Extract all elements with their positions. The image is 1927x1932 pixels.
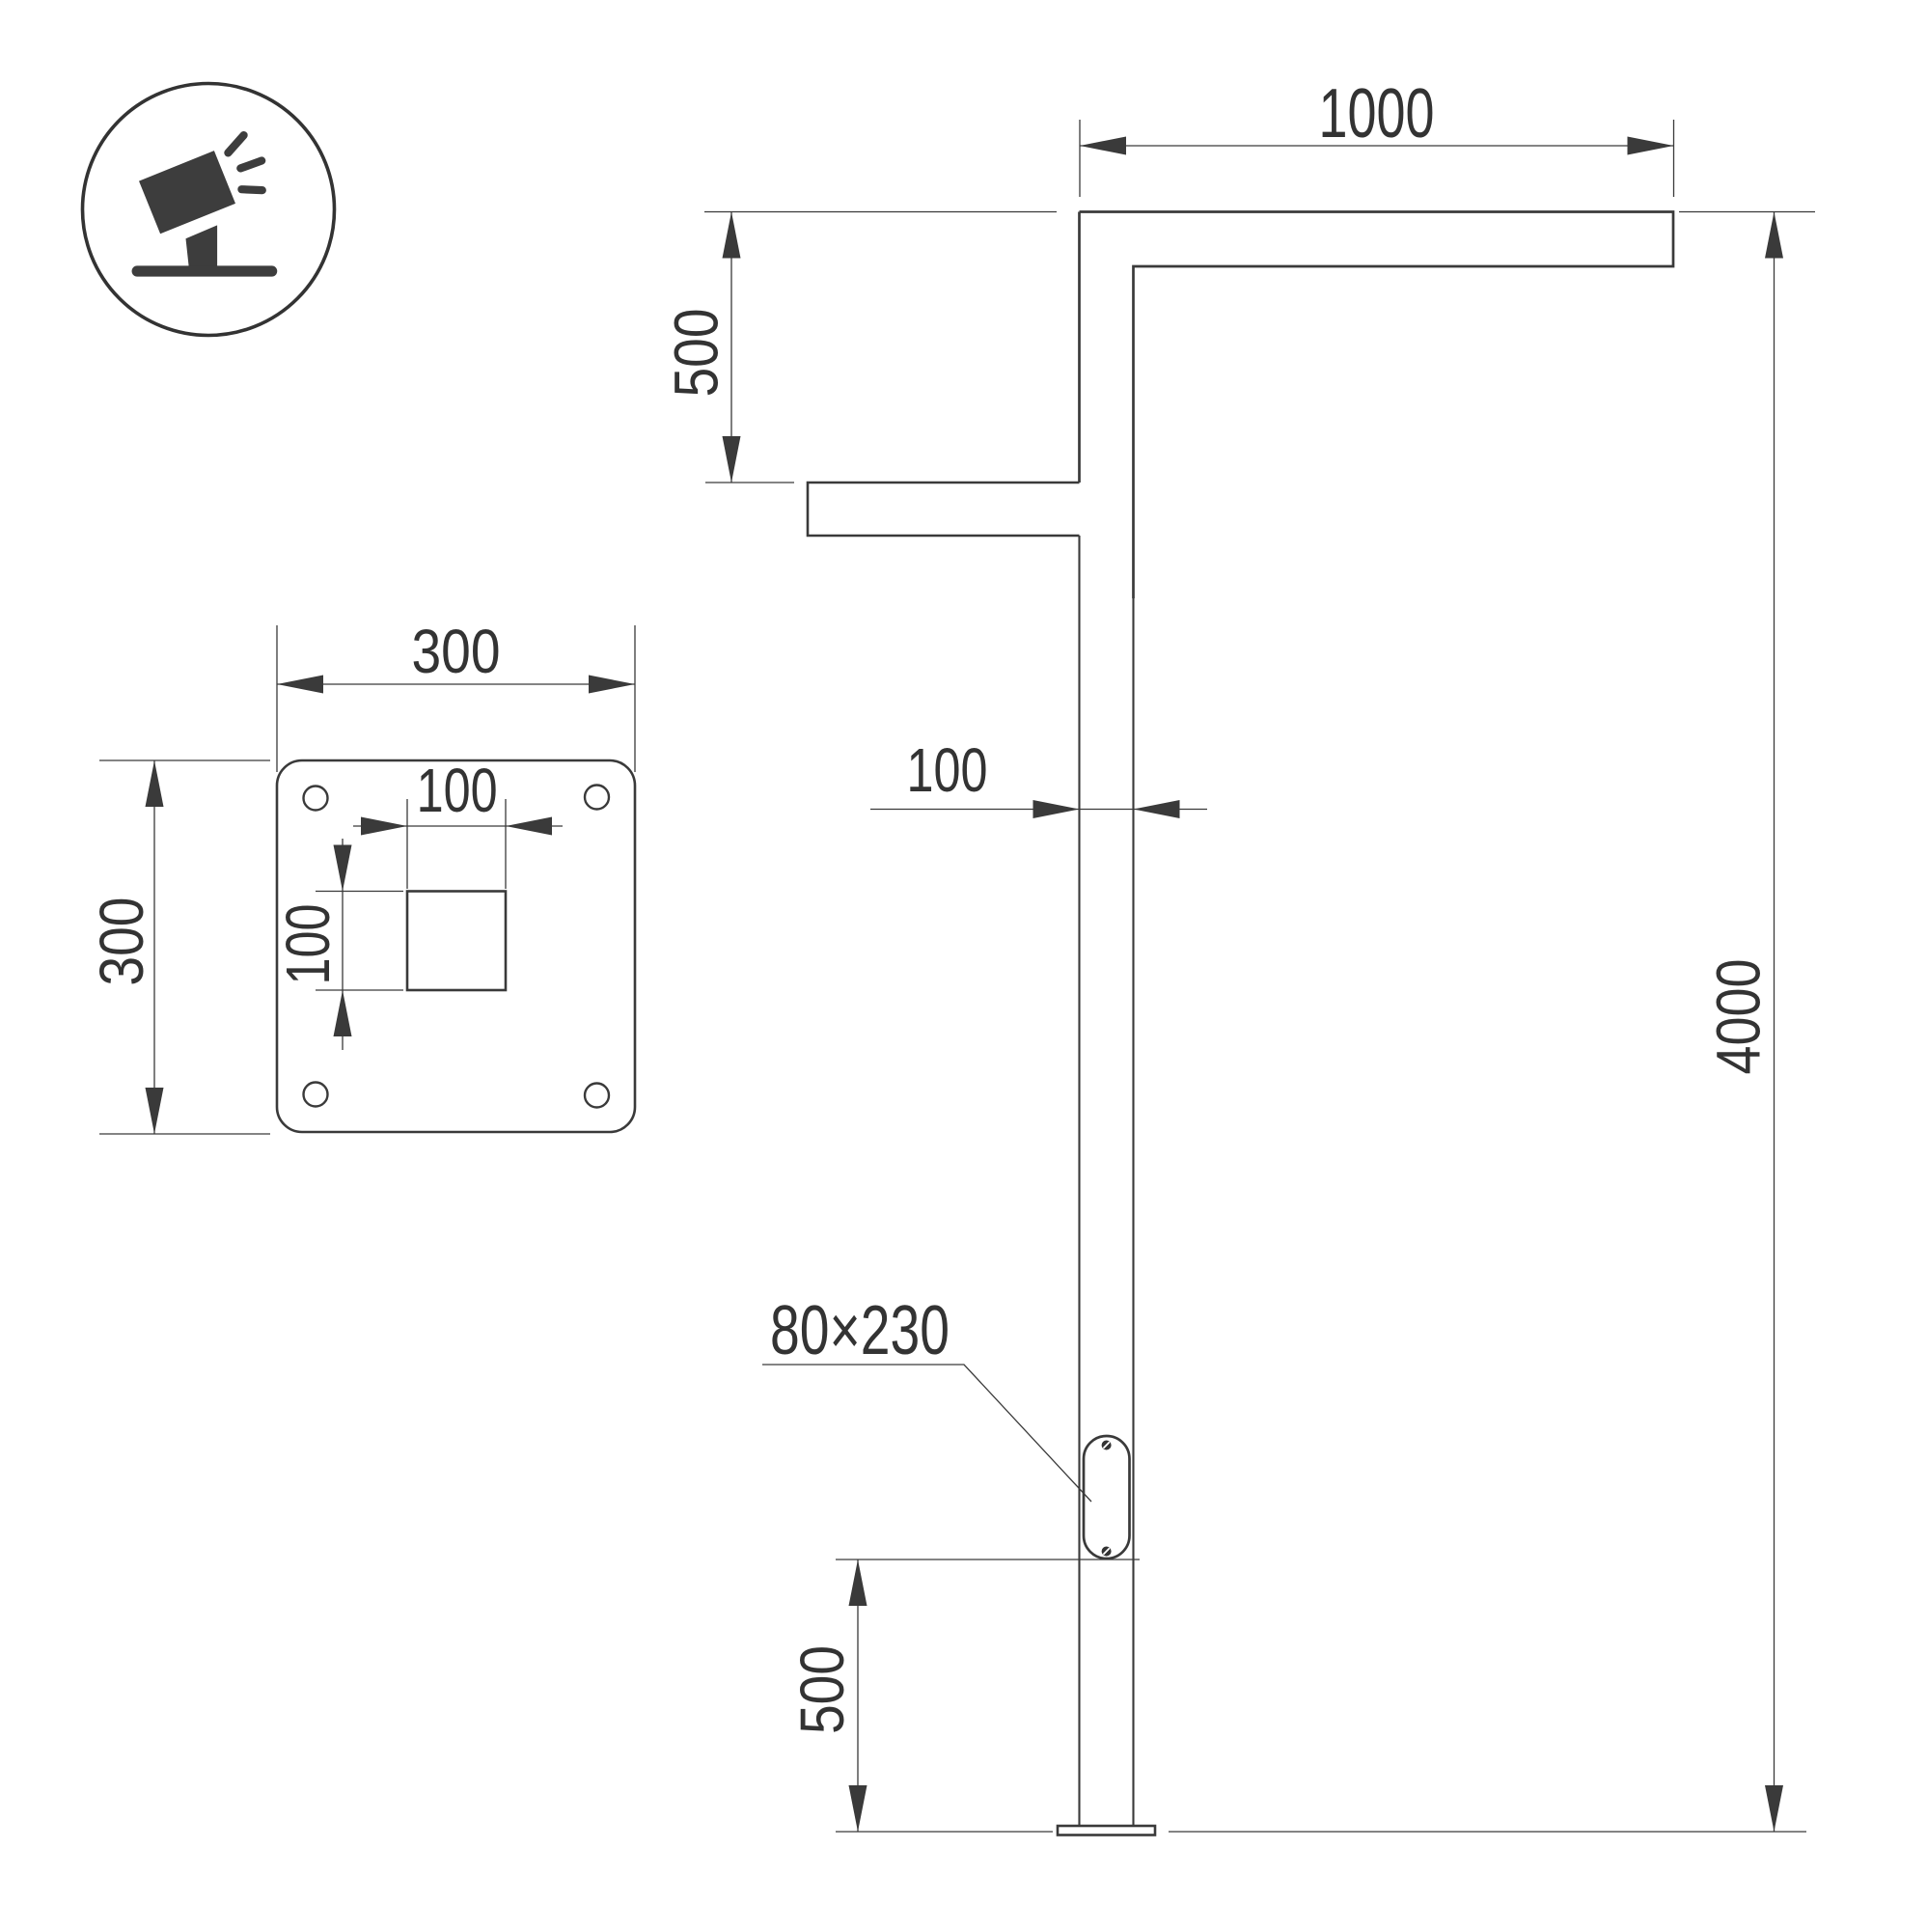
svg-text:100: 100 xyxy=(417,756,498,825)
svg-text:80×230: 80×230 xyxy=(770,1291,950,1369)
svg-text:100: 100 xyxy=(273,904,343,985)
svg-text:100: 100 xyxy=(907,735,988,805)
svg-text:500: 500 xyxy=(787,1645,857,1734)
svg-text:500: 500 xyxy=(662,309,731,398)
svg-text:300: 300 xyxy=(412,617,501,686)
svg-text:4000: 4000 xyxy=(1704,959,1774,1075)
svg-text:300: 300 xyxy=(87,897,156,986)
svg-text:1000: 1000 xyxy=(1319,74,1435,152)
